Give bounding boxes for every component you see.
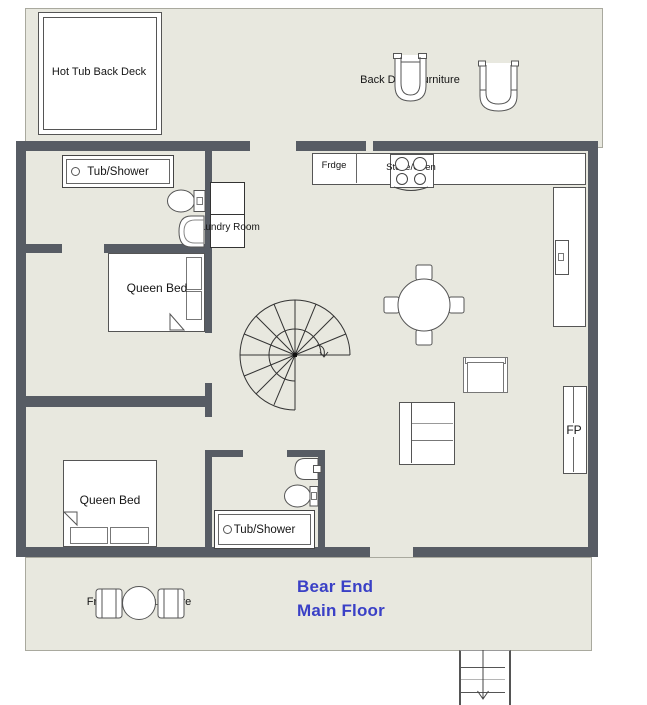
wall-top-1 — [16, 141, 250, 151]
wall-bath-lower-top-a — [212, 450, 243, 457]
kitchen-faucet-icon — [558, 253, 564, 261]
tub-drain-upper-icon — [71, 167, 80, 176]
wall-bath-upper-b — [104, 244, 205, 253]
stair-step-line-1 — [461, 667, 505, 668]
wall-bedroom-divider — [26, 396, 212, 407]
wall-bath-upper-a — [26, 244, 62, 253]
plan-title-line2: Main Floor — [297, 601, 385, 621]
tub-shower-upper-label: Tub/Shower — [66, 159, 170, 184]
sofa-cushion-line-1 — [412, 423, 453, 424]
wall-bath-lower-top-b — [287, 450, 318, 457]
queen-bed-lower-label: Queen Bed — [68, 494, 152, 508]
wall-top-2 — [296, 141, 366, 151]
sofa-cushion-line-2 — [412, 440, 453, 441]
stair-step-line-3 — [461, 692, 505, 693]
wall-right — [588, 151, 598, 557]
tub-drain-lower-icon — [223, 525, 232, 534]
tub-shower-lower-icon: Tub/Shower — [214, 510, 315, 549]
bed-lower-pillow-2 — [110, 527, 149, 544]
wall-interior-vertical-3 — [205, 450, 212, 547]
exterior-stairs — [459, 650, 511, 705]
fridge-label: Frdge — [312, 161, 356, 172]
dining-table-label: Dining Table — [391, 300, 457, 311]
wall-top-3 — [373, 141, 598, 151]
sofa-back-line — [411, 402, 412, 463]
laundry-machines-icon — [210, 182, 245, 248]
armchair-seat — [467, 362, 504, 393]
stove-label: Stove/Oven — [377, 163, 445, 174]
sofa-icon — [399, 402, 455, 465]
back-deck-furniture-label: Back Deck Furniture — [348, 74, 472, 87]
tub-shower-upper-icon: Tub/Shower — [62, 155, 174, 188]
fireplace-label: FP — [560, 421, 588, 439]
stair-step-line-2 — [461, 679, 505, 680]
bed-lower-pillow-1 — [70, 527, 108, 544]
plan-title-line1: Bear End — [297, 577, 373, 597]
wall-bottom-2 — [413, 547, 598, 557]
laundry-room-label: Laundry Room — [188, 222, 266, 234]
floor-plan-canvas: Hot Tub Back Deck Frdge Stove/Oven FP Tu… — [0, 0, 647, 705]
front-porch-furniture-label: Front Porch Furniture — [76, 596, 202, 609]
laundry-machines-divider — [210, 214, 244, 215]
counter-divider — [356, 153, 357, 183]
queen-bed-upper-label: Queen Bed — [115, 282, 199, 296]
wall-bottom-1 — [16, 547, 370, 557]
hot-tub-label: Hot Tub Back Deck — [40, 66, 158, 79]
wall-left — [16, 151, 26, 557]
wall-bath-lower-right — [318, 450, 325, 547]
